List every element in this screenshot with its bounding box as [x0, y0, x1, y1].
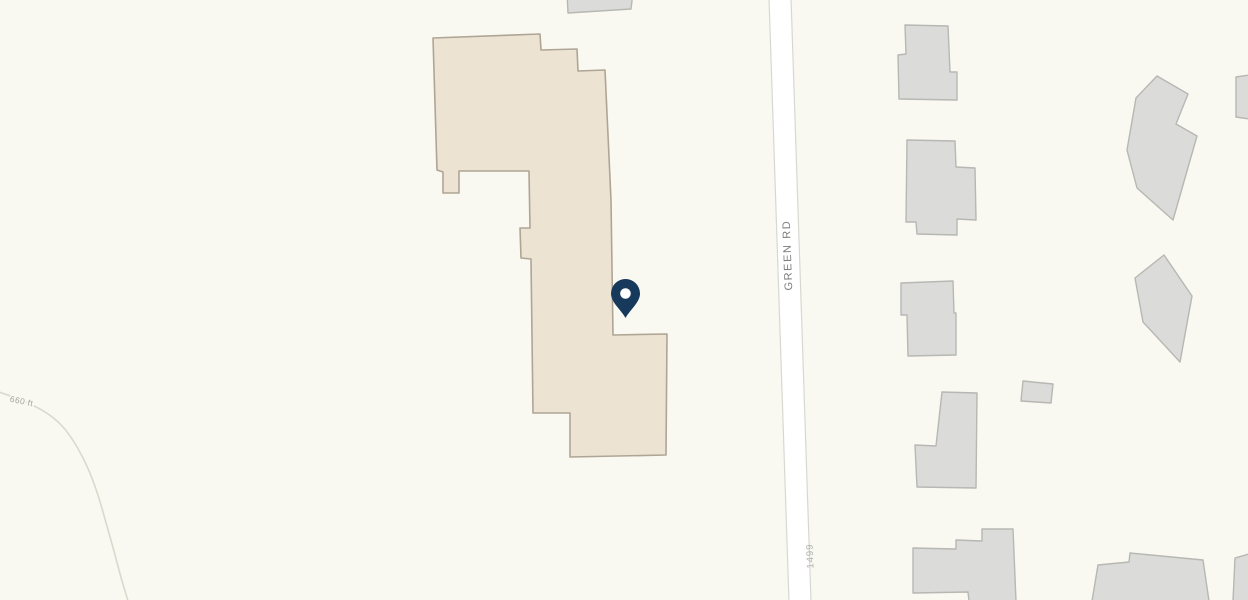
building-footprint: [1127, 76, 1197, 220]
building-footprint: [1135, 255, 1192, 362]
building-footprint: [901, 281, 956, 356]
building-footprint: [1021, 381, 1053, 403]
address-label: 1499: [805, 543, 817, 569]
building-footprint: [913, 529, 1016, 600]
building-footprint: [1092, 553, 1209, 600]
building-footprints: [567, 0, 1248, 600]
building-footprint: [915, 392, 977, 488]
building-footprint: [898, 25, 957, 100]
contour-line: [0, 391, 128, 600]
contour-label: 660 ft: [9, 394, 34, 409]
building-footprint: [906, 140, 976, 235]
road-green-rd: GREEN RD 1499: [769, 0, 816, 600]
building-footprint: [1236, 75, 1248, 119]
map-svg: 660 ft GREEN RD 1499: [0, 0, 1248, 600]
road-surface: [769, 0, 811, 600]
building-footprint: [1233, 554, 1248, 600]
highlighted-building-footprint[interactable]: [433, 34, 667, 457]
road-label: GREEN RD: [781, 219, 795, 290]
pin-hole: [620, 288, 631, 299]
building-footprint: [567, 0, 633, 13]
map-canvas[interactable]: 660 ft GREEN RD 1499: [0, 0, 1248, 600]
location-pin-marker[interactable]: [611, 279, 640, 318]
